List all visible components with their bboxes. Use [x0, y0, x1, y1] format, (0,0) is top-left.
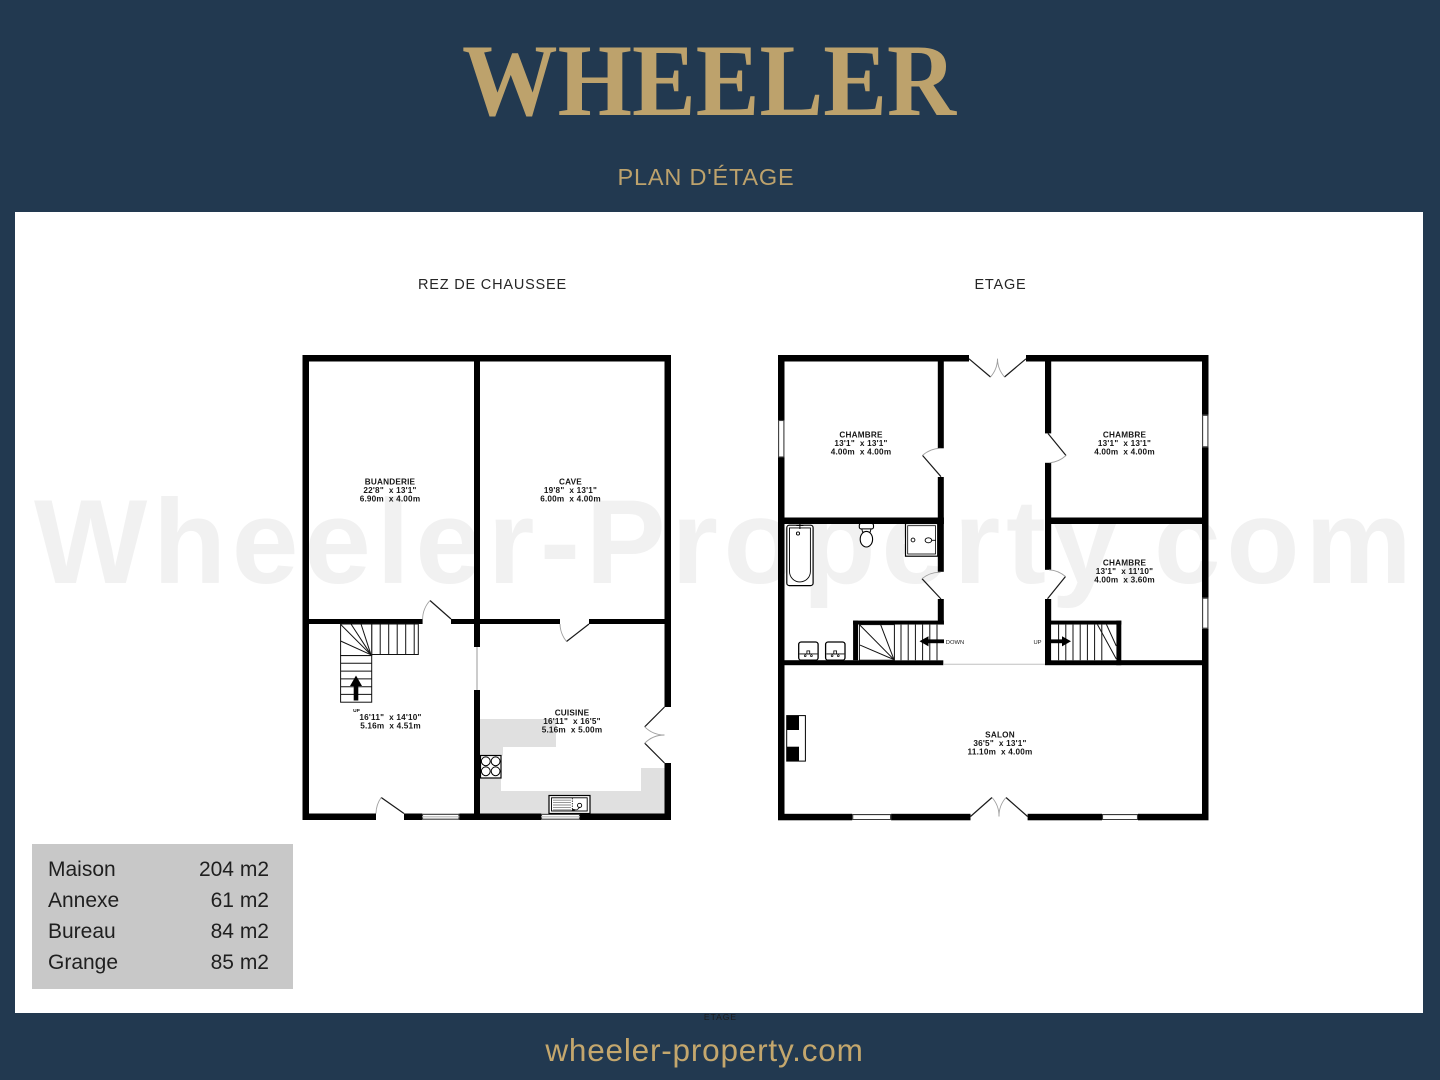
svg-text:4.00m x 4.00m: 4.00m x 4.00m — [831, 448, 892, 457]
svg-text:5.16m x 5.00m: 5.16m x 5.00m — [542, 726, 603, 735]
svg-text:4.00m x 4.00m: 4.00m x 4.00m — [1094, 448, 1155, 457]
svg-text:6.90m x 4.00m: 6.90m x 4.00m — [360, 495, 421, 504]
svg-text:11.10m x 4.00m: 11.10m x 4.00m — [968, 748, 1033, 757]
svg-text:6.00m x 4.00m: 6.00m x 4.00m — [540, 495, 601, 504]
svg-text:UP: UP — [1033, 640, 1041, 646]
svg-text:REZ DE CHAUSSEE: REZ DE CHAUSSEE — [418, 277, 567, 293]
svg-text:5.16m x 4.51m: 5.16m x 4.51m — [360, 722, 421, 731]
svg-text:4.00m x 3.60m: 4.00m x 3.60m — [1094, 576, 1155, 585]
svg-text:DOWN: DOWN — [946, 640, 964, 646]
svg-text:ETAGE: ETAGE — [974, 277, 1026, 293]
